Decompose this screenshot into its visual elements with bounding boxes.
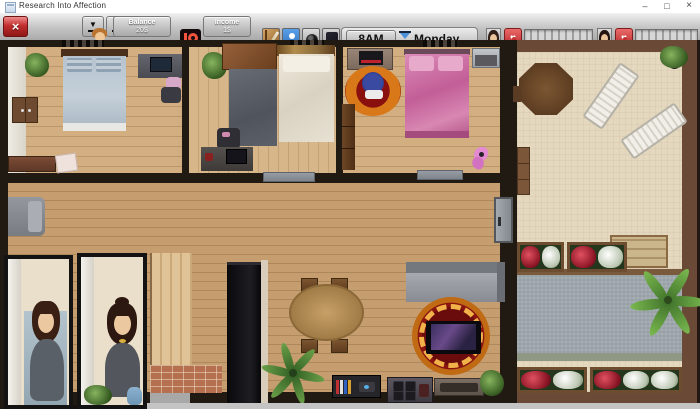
doormat [417, 170, 463, 180]
vanity[interactable] [365, 90, 383, 99]
shower-stall-2[interactable] [77, 253, 147, 409]
exit-game-button[interactable]: × [3, 16, 28, 37]
shower-stall-1[interactable] [4, 255, 73, 409]
patio-door[interactable] [494, 197, 513, 243]
character-1[interactable] [8, 259, 69, 405]
balance-label: Balance [129, 19, 156, 27]
wall [182, 47, 189, 175]
flower-planter[interactable] [590, 367, 682, 393]
toy[interactable] [472, 147, 490, 171]
income-value: 1$ [223, 27, 231, 35]
vent [62, 40, 104, 47]
bench[interactable] [517, 147, 530, 195]
potted-plant[interactable] [480, 370, 504, 396]
wall-cabinet[interactable] [472, 48, 500, 68]
refrigerator[interactable] [227, 262, 261, 403]
potted-plant[interactable] [660, 46, 688, 68]
couch[interactable] [406, 262, 505, 302]
bottom-edge [147, 403, 700, 409]
game-scene [0, 40, 700, 409]
close-button[interactable]: × [678, 0, 700, 13]
potted-plant[interactable] [84, 385, 112, 405]
dining-chair[interactable] [331, 339, 348, 353]
laundry-basket[interactable] [55, 153, 78, 174]
flower-planter[interactable] [517, 367, 587, 393]
double-bed-blue[interactable] [61, 49, 128, 131]
minimize-button[interactable]: – [634, 0, 656, 13]
balance-button[interactable]: Balance 20$ [113, 16, 171, 37]
desk-chair[interactable] [161, 87, 181, 103]
income-label: Income [215, 19, 240, 27]
title-bar: Research Into Affection – □ × [0, 0, 700, 14]
pool-edge-moss [517, 353, 682, 361]
palm-plant[interactable] [258, 340, 328, 406]
doormat [263, 172, 315, 182]
computer-desk[interactable] [201, 147, 253, 171]
wood-partition [150, 253, 192, 365]
stove[interactable] [387, 377, 433, 403]
wall-cabinet[interactable] [12, 97, 38, 123]
kitchen-counter[interactable] [434, 378, 484, 396]
brick-hallway [150, 365, 222, 393]
couch-small[interactable] [8, 197, 45, 236]
flower-planter[interactable] [517, 242, 564, 272]
computer-desk[interactable] [138, 54, 182, 78]
window-title: Research Into Affection [19, 1, 106, 10]
character-2[interactable] [81, 257, 143, 405]
toolbar: × ▼ ▲ $ Balance 20$ Income 1$ 8AM Monday [0, 13, 700, 41]
double-bed-pink[interactable] [404, 49, 470, 137]
desk-chair[interactable] [217, 128, 240, 149]
vent [423, 40, 457, 47]
picnic-bench[interactable] [513, 86, 521, 102]
maximize-button[interactable]: □ [656, 0, 678, 13]
potted-plant[interactable] [25, 53, 49, 77]
television[interactable] [426, 321, 481, 354]
palm-tree[interactable] [636, 268, 700, 332]
single-bed-white[interactable] [277, 45, 335, 142]
income-button[interactable]: Income 1$ [203, 16, 251, 37]
wardrobe[interactable] [342, 104, 355, 170]
bucket[interactable] [127, 387, 142, 405]
app-window: Research Into Affection – □ × × ▼ ▲ $ Ba… [0, 0, 700, 409]
dining-table[interactable] [289, 284, 364, 341]
dresser[interactable] [8, 156, 56, 172]
flower-planter[interactable] [567, 242, 627, 272]
bookshelf-counter[interactable] [332, 375, 381, 398]
balance-value: 20$ [136, 27, 148, 35]
app-icon [5, 2, 16, 13]
